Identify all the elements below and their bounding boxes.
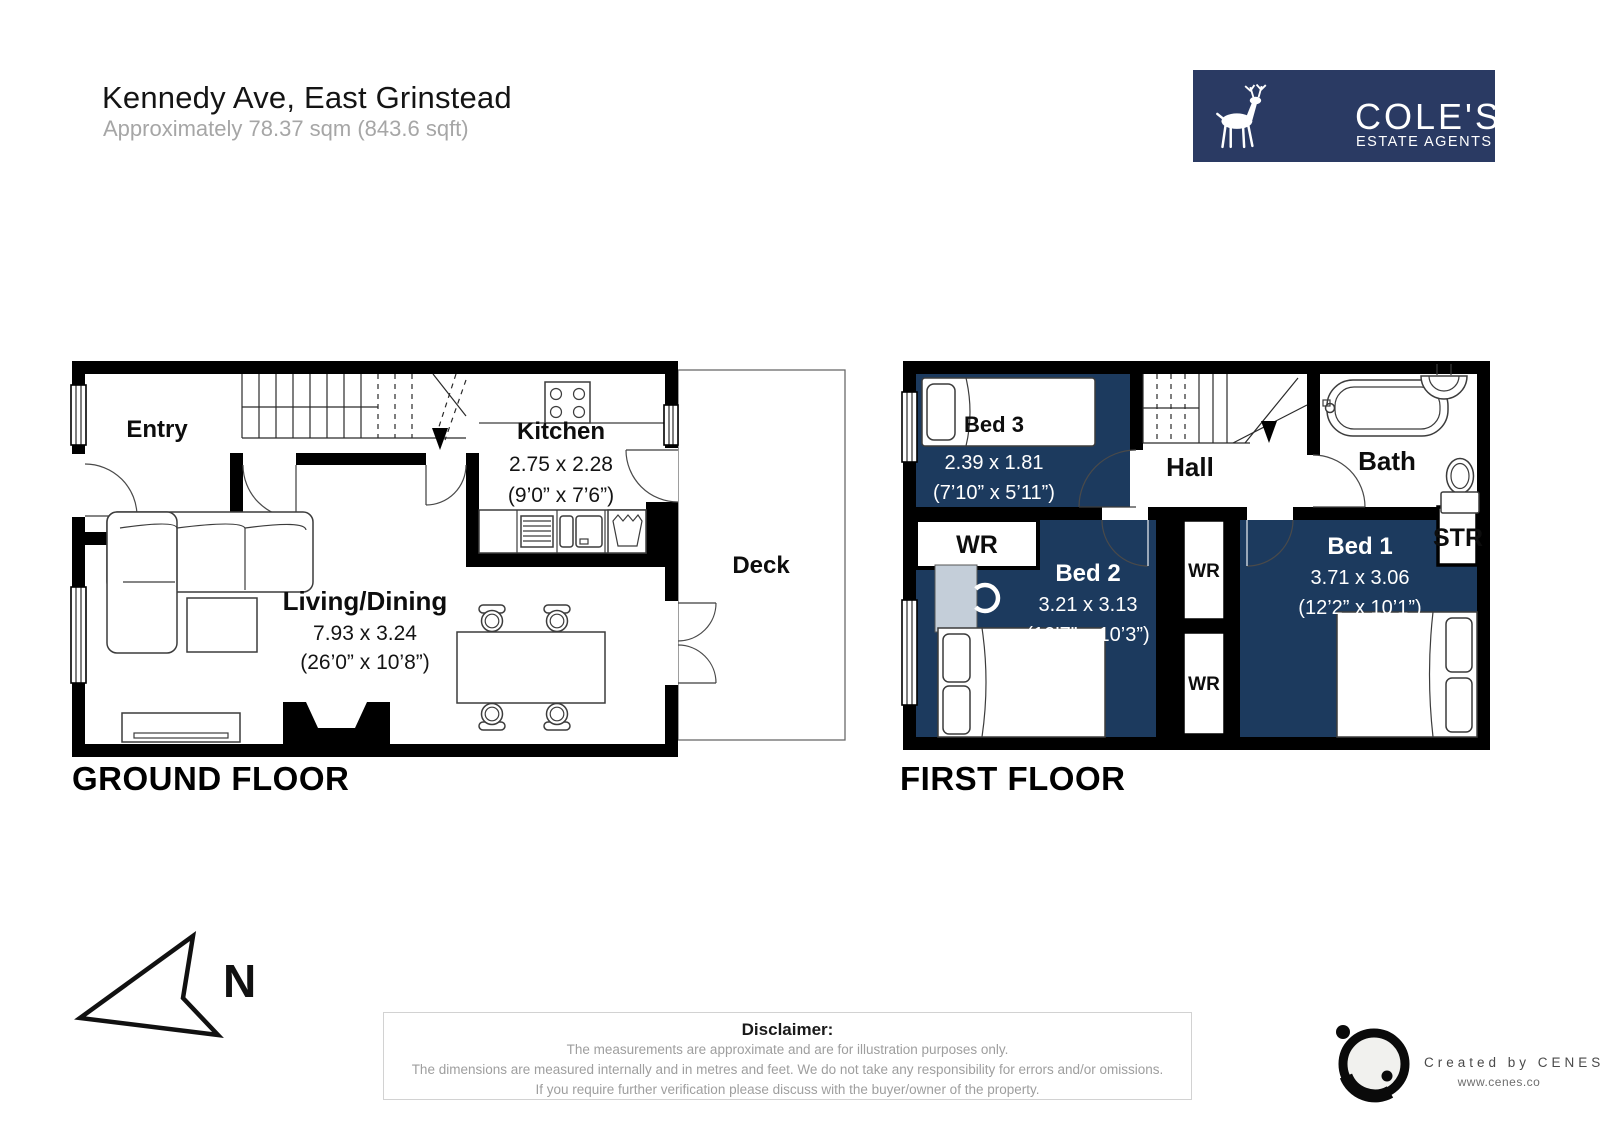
kitchen-dims-ft: (9’0” x 7’6”) bbox=[508, 484, 614, 507]
bed2-dims-m: 3.21 x 3.13 bbox=[1039, 594, 1138, 616]
bed3-dims-m: 2.39 x 1.81 bbox=[945, 452, 1044, 474]
wardrobe-mid-1-label: WR bbox=[1188, 561, 1220, 582]
bed3-label: Bed 3 bbox=[964, 412, 1024, 437]
sink-icon bbox=[560, 516, 573, 547]
living-dims-m: 7.93 x 3.24 bbox=[313, 622, 417, 645]
bed1-label: Bed 1 bbox=[1327, 533, 1392, 560]
disclaimer-line-1: The measurements are approximate and are… bbox=[384, 1040, 1191, 1060]
desk-icon bbox=[935, 565, 977, 632]
living-dims-ft: (26’0” x 10’8”) bbox=[300, 651, 430, 674]
kitchen-dims-m: 2.75 x 2.28 bbox=[509, 453, 613, 476]
disclaimer-box: Disclaimer: The measurements are approxi… bbox=[383, 1012, 1192, 1100]
disclaimer-line-3: If you require further verification plea… bbox=[384, 1080, 1191, 1100]
dining-table-icon bbox=[457, 632, 605, 703]
bed2-label: Bed 2 bbox=[1055, 560, 1120, 587]
kitchen-label: Kitchen bbox=[517, 418, 605, 445]
ground-floor-title: GROUND FLOOR bbox=[72, 760, 349, 798]
wardrobe-mid-2-label: WR bbox=[1188, 674, 1220, 695]
agency-logo: COLE'S ESTATE AGENTS bbox=[1193, 70, 1495, 162]
brand-tagline: ESTATE AGENTS bbox=[1356, 134, 1493, 150]
bath-label: Bath bbox=[1358, 446, 1416, 476]
first-floor-title: FIRST FLOOR bbox=[900, 760, 1125, 798]
compass-north-icon: N bbox=[60, 900, 270, 1050]
compass-north-label: N bbox=[223, 955, 256, 1007]
bed1-dims-ft: (12’2” x 10’1”) bbox=[1298, 597, 1421, 619]
living-label: Living/Dining bbox=[283, 586, 448, 616]
bed3-dims-ft: (7’10” x 5’11”) bbox=[933, 482, 1055, 504]
disclaimer-title: Disclaimer: bbox=[384, 1020, 1191, 1040]
disclaimer-line-2: The dimensions are measured internally a… bbox=[384, 1060, 1191, 1080]
credit-text: Created by CENES bbox=[1424, 1055, 1600, 1070]
brand-name: COLE'S bbox=[1355, 96, 1502, 138]
bed2-dims-ft: (10’7” x 10’3”) bbox=[1026, 624, 1149, 646]
first-floor-plan: Bed 3 2.39 x 1.81 (7’10” x 5’11”) WR Bed… bbox=[890, 350, 1510, 760]
hall-label: Hall bbox=[1166, 452, 1214, 482]
credit-url: www.cenes.co bbox=[1424, 1075, 1574, 1089]
ground-floor-plan: Entry Kitchen 2.75 x 2.28 (9’0” x 7’6”) … bbox=[60, 350, 870, 760]
storage-label: STR bbox=[1433, 524, 1483, 552]
coffee-table-icon bbox=[187, 598, 257, 652]
deck-label: Deck bbox=[732, 552, 790, 579]
page-subtitle: Approximately 78.37 sqm (843.6 sqft) bbox=[103, 116, 469, 142]
entry-label: Entry bbox=[126, 416, 188, 443]
bed1-dims-m: 3.71 x 3.06 bbox=[1311, 567, 1410, 589]
cenes-logo-icon bbox=[1330, 1018, 1416, 1104]
wardrobe-left-label: WR bbox=[956, 531, 998, 559]
bed1-furniture bbox=[1337, 612, 1477, 737]
page-title: Kennedy Ave, East Grinstead bbox=[102, 80, 512, 116]
stag-icon bbox=[1209, 84, 1271, 150]
floorplan-page: Kennedy Ave, East Grinstead Approximatel… bbox=[0, 0, 1600, 1131]
